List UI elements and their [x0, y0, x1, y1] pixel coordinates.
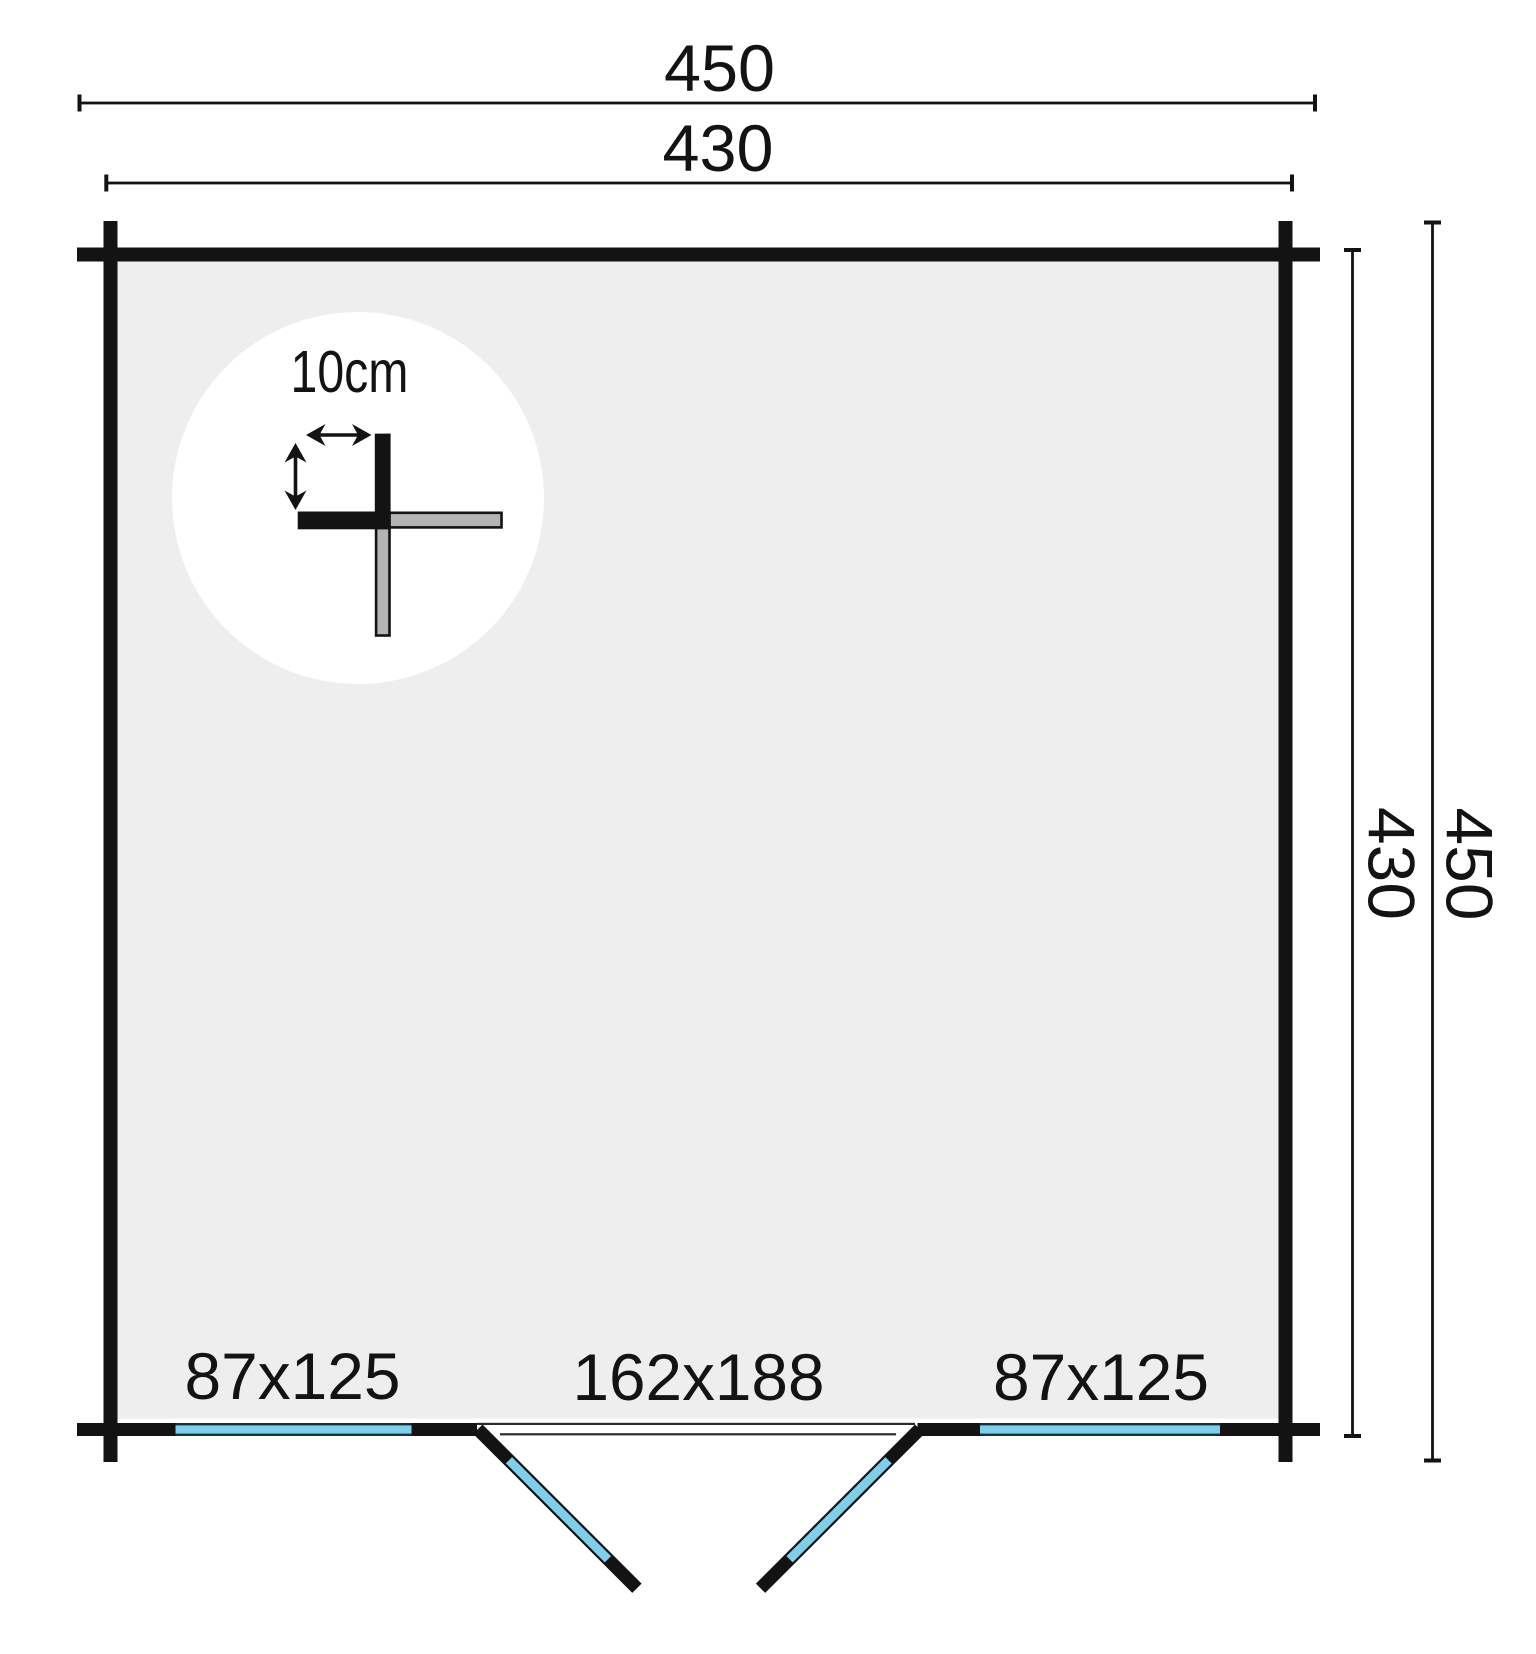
svg-text:430: 430 [1355, 807, 1429, 920]
svg-text:450: 450 [664, 31, 775, 105]
svg-text:450: 450 [1433, 808, 1507, 921]
svg-text:10cm: 10cm [291, 339, 409, 405]
svg-text:162x188: 162x188 [573, 1340, 825, 1414]
svg-text:430: 430 [663, 111, 774, 185]
svg-text:87x125: 87x125 [993, 1340, 1209, 1414]
svg-text:87x125: 87x125 [185, 1339, 401, 1413]
